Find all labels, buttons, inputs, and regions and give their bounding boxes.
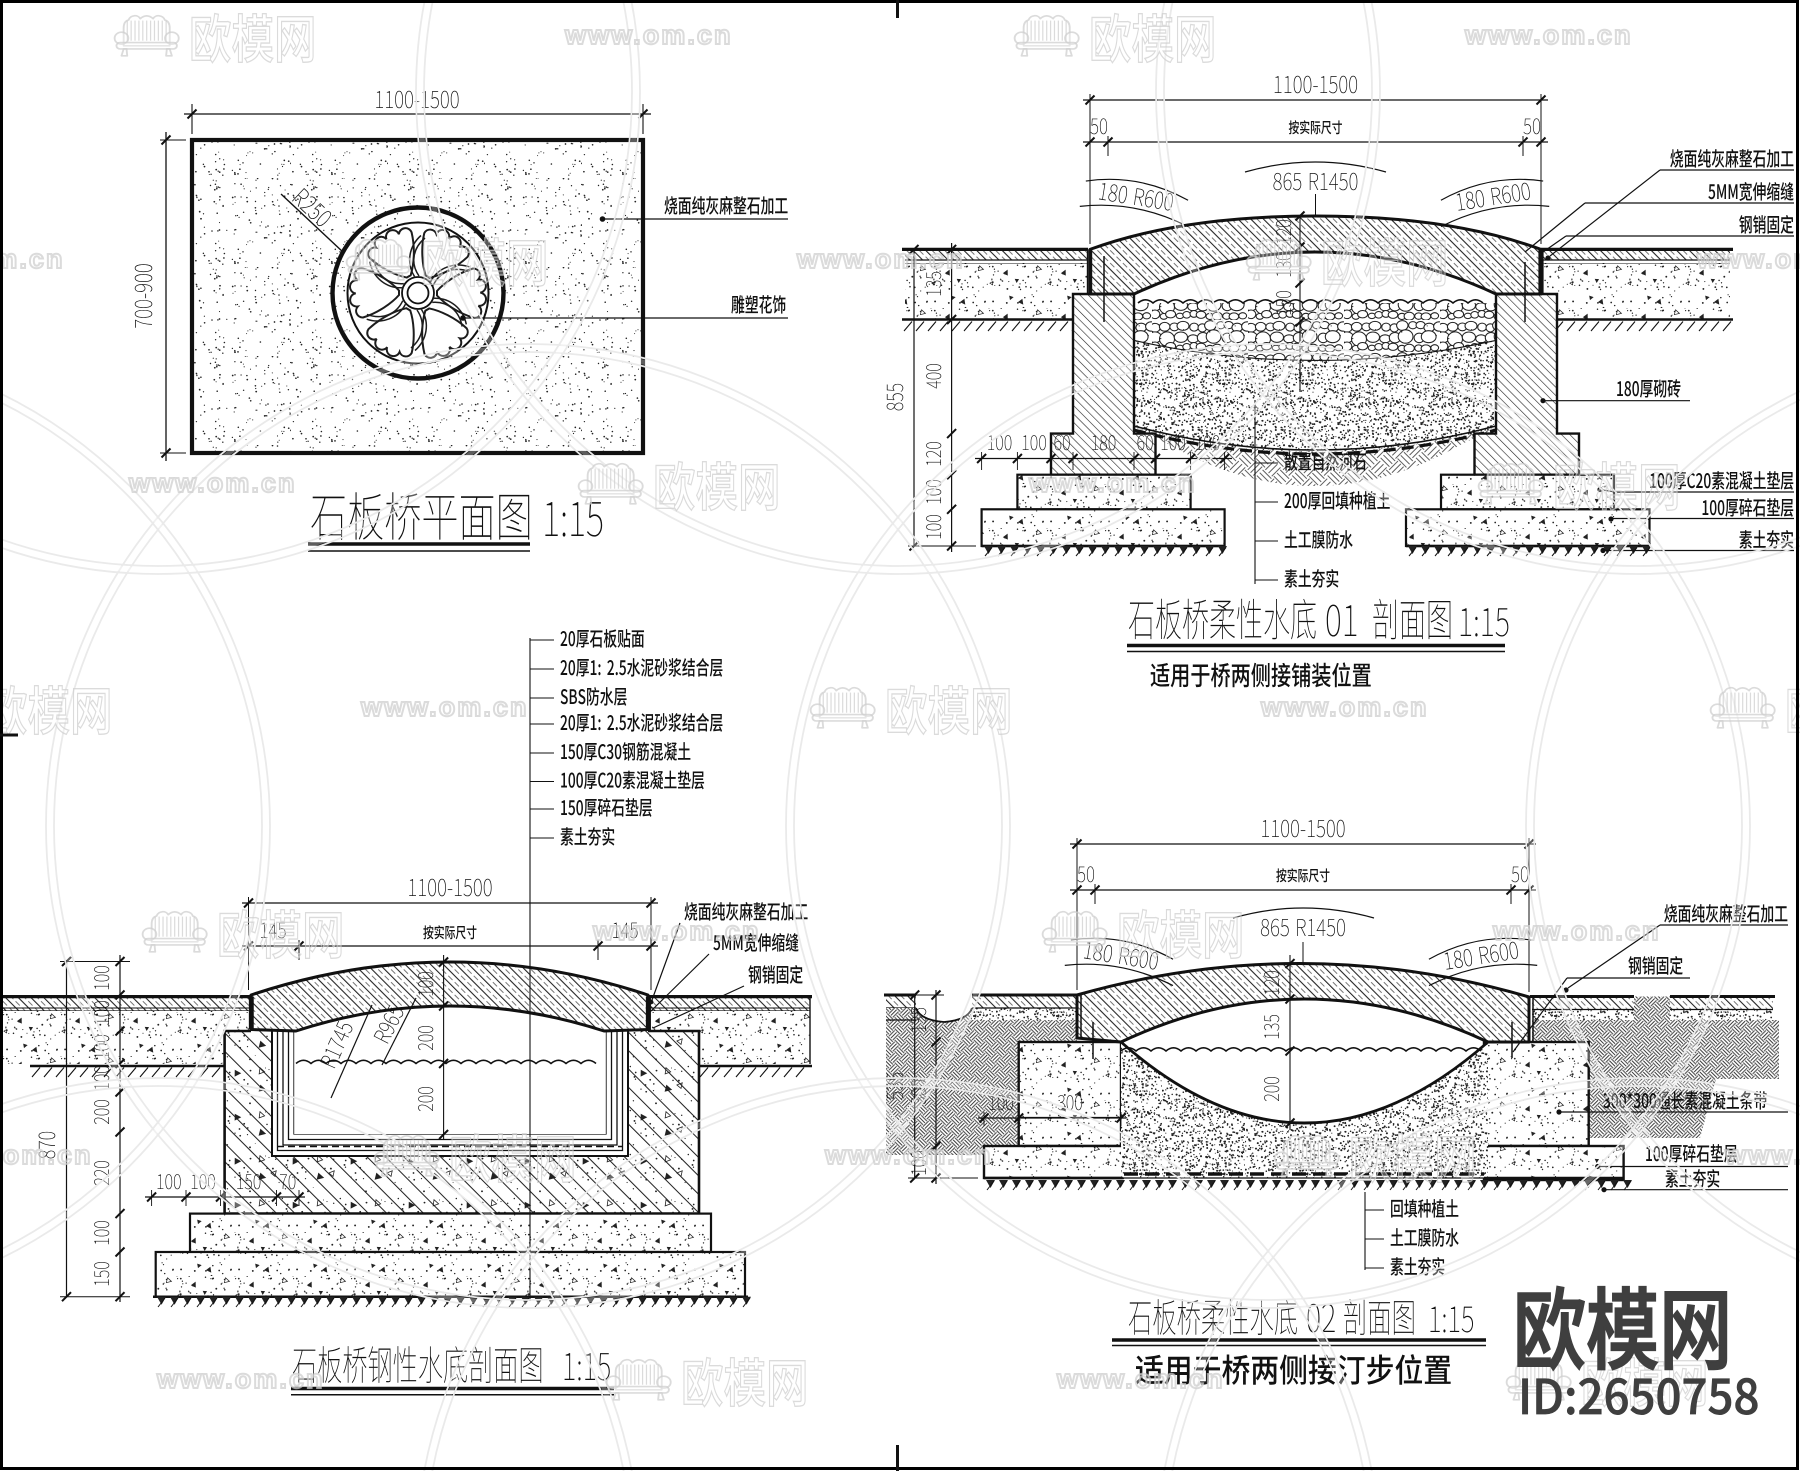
svg-text:www.om.cn: www.om.cn — [592, 916, 761, 946]
svg-text:www.om.cn: www.om.cn — [360, 692, 529, 722]
svg-text:www.om.cn: www.om.cn — [0, 244, 65, 274]
svg-text:www.om.cn: www.om.cn — [1260, 692, 1429, 722]
svg-text:www.om.cn: www.om.cn — [824, 1140, 993, 1170]
svg-text:www.om.cn: www.om.cn — [0, 1140, 93, 1170]
svg-text:www.om.cn: www.om.cn — [156, 1364, 325, 1394]
svg-text:www.om.cn: www.om.cn — [1464, 20, 1633, 50]
svg-text:www.om.cn: www.om.cn — [1028, 468, 1197, 498]
svg-text:www.om.cn: www.om.cn — [1056, 1364, 1225, 1394]
svg-text:www.om.cn: www.om.cn — [128, 468, 297, 498]
svg-text:www.om.cn: www.om.cn — [564, 20, 733, 50]
svg-text:www.om.cn: www.om.cn — [1492, 916, 1661, 946]
svg-text:www.om.cn: www.om.cn — [796, 244, 965, 274]
svg-text:www.om.cn: www.om.cn — [1724, 1140, 1800, 1170]
svg-text:www.om.cn: www.om.cn — [1696, 244, 1800, 274]
